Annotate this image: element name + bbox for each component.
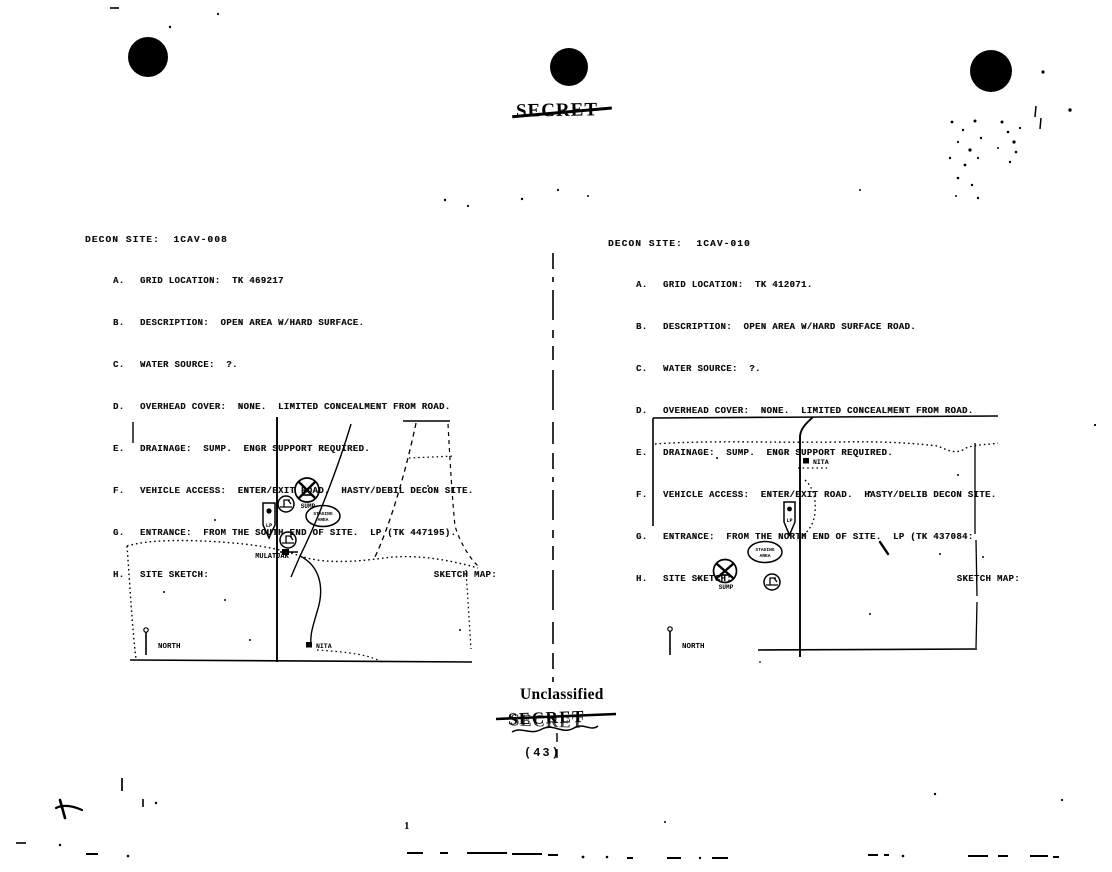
secret-stamp: SECRET bbox=[516, 99, 596, 122]
svg-text:AREA: AREA bbox=[317, 517, 328, 523]
settlement-label: NITA bbox=[813, 459, 829, 466]
east-west-dotted-road bbox=[127, 541, 478, 569]
item-letter: C. bbox=[636, 364, 648, 374]
bottom-boundary-line bbox=[130, 660, 472, 662]
declassification-block: Unclassified SECRET SECRET (43) bbox=[496, 686, 626, 760]
settlement-marker: NITA bbox=[306, 642, 332, 650]
svg-text:SUMP: SUMP bbox=[301, 503, 316, 510]
sump-symbol: SUMP bbox=[714, 560, 737, 592]
item-text: DESCRIPTION: OPEN AREA W/HARD SURFACE RO… bbox=[663, 322, 916, 332]
curved-road bbox=[300, 556, 321, 645]
header-specks bbox=[444, 189, 589, 207]
staging-area-ellipse: STAGING AREA bbox=[306, 506, 340, 527]
bottom-edge-dashes bbox=[86, 853, 1059, 859]
slash-mark bbox=[880, 542, 888, 554]
item-text: WATER SOURCE: ?. bbox=[140, 360, 238, 370]
top-boundary-line bbox=[653, 416, 998, 418]
svg-text:LP: LP bbox=[266, 522, 273, 529]
east-west-dotted-road bbox=[655, 442, 998, 452]
svg-text:STAGING: STAGING bbox=[313, 511, 333, 517]
item-letter: B. bbox=[636, 322, 648, 332]
water-point-icon bbox=[278, 496, 294, 512]
item-letter: A. bbox=[113, 276, 125, 286]
item-letter: G. bbox=[113, 528, 125, 538]
item-text: OVERHEAD COVER: NONE. LIMITED CONCEALMEN… bbox=[140, 402, 451, 412]
hole-punch-center bbox=[550, 48, 588, 86]
hole-punch-left bbox=[128, 37, 168, 77]
water-point-icon bbox=[764, 574, 780, 590]
item-text: WATER SOURCE: ?. bbox=[663, 364, 761, 374]
north-label: NORTH bbox=[682, 643, 705, 651]
north-label: NORTH bbox=[158, 643, 181, 651]
svg-text:SUMP: SUMP bbox=[719, 584, 734, 591]
scanned-document-page: SECRET DECON SITE: 1CAV-008 A.GRID LOCAT… bbox=[0, 0, 1112, 872]
staging-area-ellipse: STAGING AREA bbox=[748, 542, 782, 563]
site-heading: DECON SITE: 1CAV-010 bbox=[608, 238, 1020, 249]
item-letter: F. bbox=[113, 486, 125, 496]
north-arrow: NORTH bbox=[144, 628, 181, 655]
site-item: A.GRID LOCATION: TK 412071. bbox=[608, 280, 1020, 302]
east-dotted-boundary-lower bbox=[466, 570, 471, 649]
item-letter: E. bbox=[113, 444, 125, 454]
sketch-map-left: LP SUMP STAGING AREA MULATJA bbox=[124, 416, 480, 666]
site-item: B.DESCRIPTION: OPEN AREA W/HARD SURFACE … bbox=[608, 322, 1020, 344]
east-dotted-boundary bbox=[448, 424, 478, 566]
item-letter: H. bbox=[113, 570, 125, 580]
lp-marker-icon: LP bbox=[784, 502, 795, 535]
sketch-map-right: NITA LP STAGING AREA SUMP bbox=[640, 414, 1000, 676]
site-item: C.WATER SOURCE: ?. bbox=[608, 364, 1020, 386]
bottom-left-marks bbox=[16, 778, 157, 846]
site-item: C.WATER SOURCE: ?. bbox=[85, 360, 497, 382]
site-heading: DECON SITE: 1CAV-008 bbox=[85, 234, 497, 245]
settlement-label: NITA bbox=[316, 643, 332, 650]
page-count-label: (43) bbox=[524, 746, 626, 760]
map-specks bbox=[697, 457, 984, 663]
east-boundary-line bbox=[975, 443, 977, 648]
item-text: DESCRIPTION: OPEN AREA W/HARD SURFACE. bbox=[140, 318, 364, 328]
site-item: B.DESCRIPTION: OPEN AREA W/HARD SURFACE. bbox=[85, 318, 497, 340]
dashed-trail bbox=[374, 423, 416, 559]
west-dotted-boundary bbox=[127, 546, 136, 659]
speckle-cluster bbox=[949, 70, 1072, 199]
sump-symbol: SUMP bbox=[295, 478, 319, 510]
item-letter: B. bbox=[113, 318, 125, 328]
site-item: A.GRID LOCATION: TK 469217 bbox=[85, 276, 497, 298]
north-arrow: NORTH bbox=[668, 627, 705, 655]
item-letter: C. bbox=[113, 360, 125, 370]
main-road bbox=[800, 417, 813, 657]
lp-marker-icon: LP bbox=[263, 503, 275, 538]
item-letter: D. bbox=[113, 402, 125, 412]
item-letter: A. bbox=[636, 280, 648, 290]
crossed-secret-stamp: SECRET SECRET bbox=[496, 704, 622, 740]
svg-text:LP: LP bbox=[786, 518, 792, 524]
dotted-branch bbox=[409, 456, 455, 458]
settlement-marker: NITA bbox=[803, 458, 829, 466]
item-text: GRID LOCATION: TK 469217 bbox=[140, 276, 284, 286]
hole-punch-right bbox=[970, 50, 1012, 92]
bottom-boundary-line bbox=[758, 649, 977, 650]
page-number: 1 bbox=[404, 820, 410, 832]
item-text: GRID LOCATION: TK 412071. bbox=[663, 280, 813, 290]
svg-text:AREA: AREA bbox=[759, 553, 770, 559]
unclassified-label: Unclassified bbox=[520, 686, 626, 704]
svg-text:STAGING: STAGING bbox=[755, 547, 775, 553]
top-edge-marks bbox=[110, 8, 219, 28]
town-label: MULATJAK bbox=[255, 553, 289, 561]
